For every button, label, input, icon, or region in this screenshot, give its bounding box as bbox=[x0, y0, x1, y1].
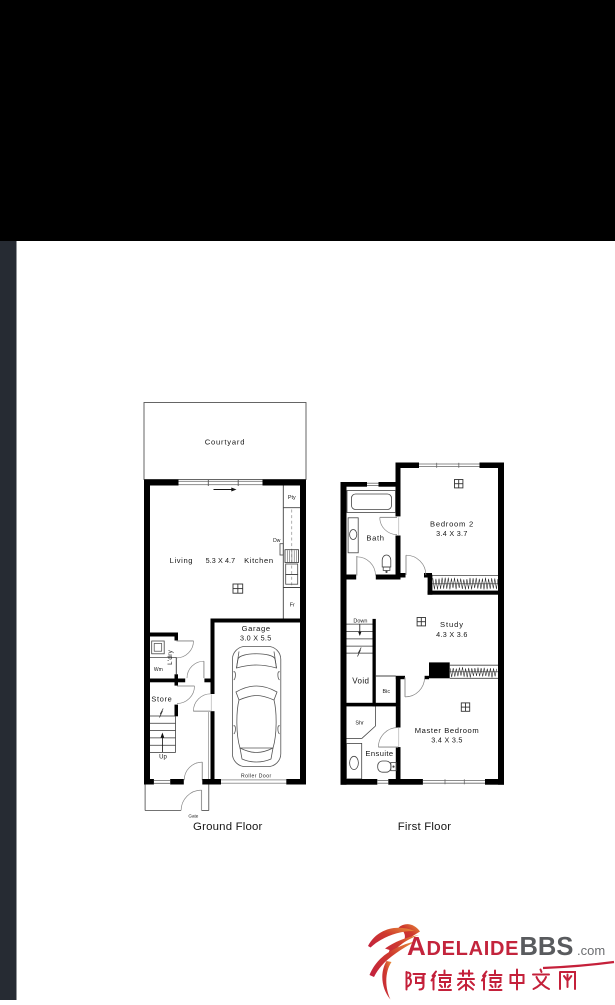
svg-text:Bedroom 2: Bedroom 2 bbox=[430, 519, 474, 528]
svg-text:5.3 X 4.7: 5.3 X 4.7 bbox=[206, 556, 236, 565]
svg-text:Down: Down bbox=[353, 619, 367, 625]
svg-text:Gate: Gate bbox=[188, 813, 198, 818]
svg-text:Garage: Garage bbox=[242, 624, 271, 633]
svg-text:4.3 X 3.6: 4.3 X 3.6 bbox=[436, 630, 467, 639]
svg-text:Fr: Fr bbox=[290, 602, 295, 608]
svg-text:3.0 X 5.5: 3.0 X 5.5 bbox=[240, 634, 271, 643]
svg-text:Shr: Shr bbox=[355, 721, 364, 727]
svg-text:Master Bedroom: Master Bedroom bbox=[415, 726, 480, 735]
svg-text:BBS: BBS bbox=[520, 933, 574, 961]
svg-text:Kitchen: Kitchen bbox=[244, 556, 274, 565]
svg-text:Ground Floor: Ground Floor bbox=[193, 821, 263, 833]
svg-text:Store: Store bbox=[151, 694, 172, 703]
svg-text:Ensuite: Ensuite bbox=[365, 749, 393, 758]
svg-text:Courtyard: Courtyard bbox=[205, 438, 246, 447]
svg-text:Pty: Pty bbox=[288, 495, 296, 501]
svg-text:3.4 X 3.5: 3.4 X 3.5 bbox=[431, 735, 462, 744]
svg-text:Wm: Wm bbox=[154, 667, 163, 673]
svg-text:3.4 X 3.7: 3.4 X 3.7 bbox=[436, 529, 467, 538]
svg-text:Living: Living bbox=[170, 556, 193, 565]
svg-text:Void: Void bbox=[352, 676, 369, 685]
svg-text:Dw: Dw bbox=[273, 538, 281, 544]
svg-text:.com: .com bbox=[577, 943, 605, 958]
svg-text:Study: Study bbox=[440, 620, 464, 629]
svg-text:Bic: Bic bbox=[383, 689, 391, 695]
svg-text:First Floor: First Floor bbox=[398, 821, 451, 833]
svg-text:Bath: Bath bbox=[366, 534, 384, 543]
svg-text:Roller Door: Roller Door bbox=[241, 773, 272, 779]
svg-text:Up: Up bbox=[159, 755, 167, 761]
svg-text:L'dry: L'dry bbox=[167, 649, 174, 665]
